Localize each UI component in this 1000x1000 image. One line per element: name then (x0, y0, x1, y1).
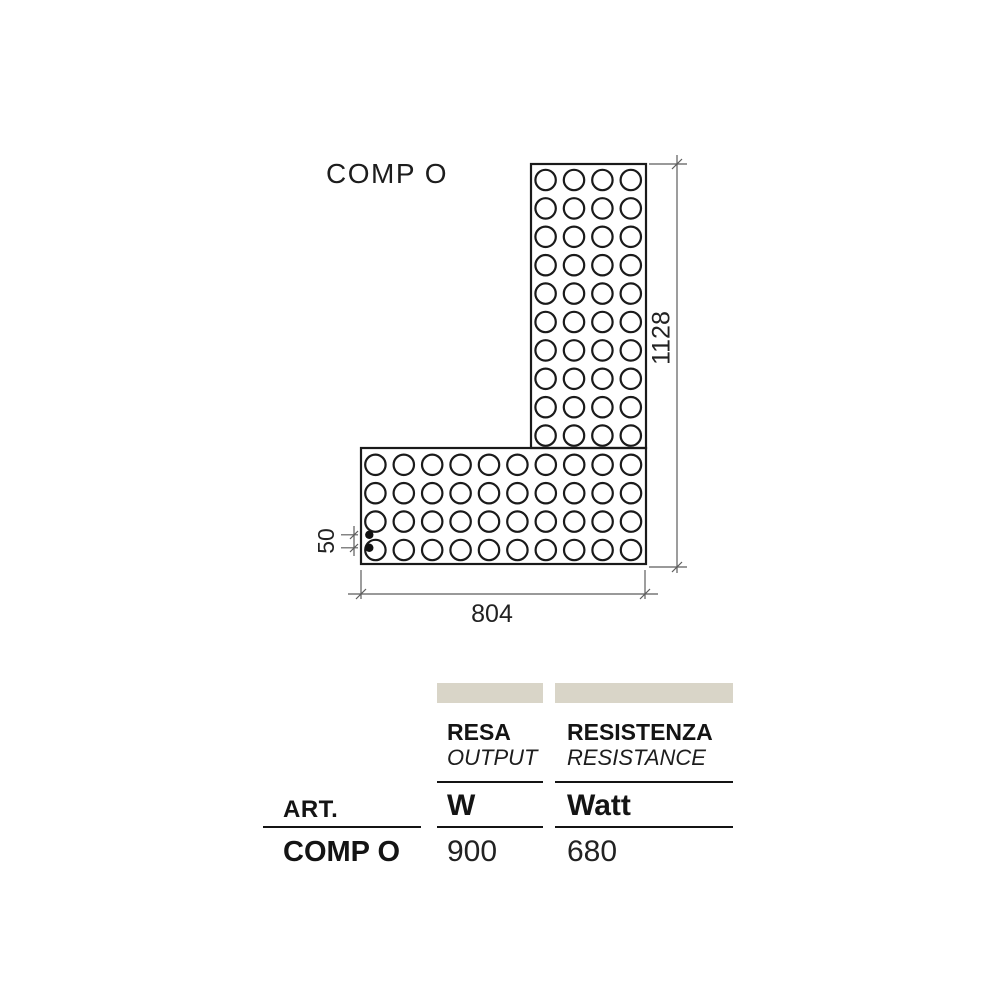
dimension-width (348, 570, 658, 599)
heating-element-circle (564, 340, 584, 360)
heating-element-circle (507, 540, 527, 560)
heating-element-circle (536, 483, 556, 503)
heating-element-circle (621, 511, 641, 531)
dimension-offset-label: 50 (313, 528, 339, 554)
header-bar-resistance (555, 683, 733, 703)
art-header: ART. (283, 798, 338, 822)
heating-element-circle (535, 170, 555, 190)
heating-element-circle (450, 511, 470, 531)
heating-element-circle (564, 369, 584, 389)
heating-element-circle (564, 425, 584, 445)
row-resistance-value: 680 (567, 837, 617, 867)
column-title-output: RESA (447, 721, 511, 744)
heating-element-circle (450, 455, 470, 475)
unit-resistance: Watt (567, 791, 631, 821)
heating-element-circle (394, 540, 414, 560)
heating-element-circle (507, 483, 527, 503)
heating-element-circle (592, 540, 612, 560)
heating-element-circle (564, 483, 584, 503)
column-subtitle-resistance: RESISTANCE (567, 747, 706, 769)
heating-element-circle (535, 425, 555, 445)
heating-element-circle (564, 198, 584, 218)
heating-element-circle (450, 540, 470, 560)
heating-element-circle (479, 540, 499, 560)
dimension-offset (341, 526, 358, 556)
heating-element-circle (422, 540, 442, 560)
heating-element-circle (564, 255, 584, 275)
heating-element-circle (536, 455, 556, 475)
heating-element-circle (564, 283, 584, 303)
heating-element-circle (365, 483, 385, 503)
row-article-name: COMP O (283, 838, 400, 867)
heating-element-circle (535, 283, 555, 303)
diagram-title: COMP O (326, 158, 448, 190)
column-title-resistance: RESISTENZA (567, 721, 713, 744)
heating-element-circle (621, 425, 641, 445)
heating-element-circle (621, 540, 641, 560)
heating-element-circle (592, 425, 612, 445)
table-rule (555, 781, 733, 783)
heating-element-circle (422, 455, 442, 475)
connection-dot (365, 544, 373, 552)
heating-element-circle (621, 198, 641, 218)
heating-element-circle (422, 511, 442, 531)
table-rule (263, 826, 421, 828)
heating-element-circle (564, 170, 584, 190)
heating-element-circle (621, 255, 641, 275)
panel-drawing: 1128 804 50 (0, 0, 1000, 1000)
heating-element-circle (535, 397, 555, 417)
heating-element-circle (592, 283, 612, 303)
heating-element-circle (621, 227, 641, 247)
heating-element-circle (564, 511, 584, 531)
heating-element-circle (535, 312, 555, 332)
heating-element-circle (535, 227, 555, 247)
heating-element-circle (479, 483, 499, 503)
spec-sheet-page: 1128 804 50 COMP O RESA OUTPUT RESISTENZ… (0, 0, 1000, 1000)
heating-element-circle (592, 255, 612, 275)
heating-element-circle (621, 340, 641, 360)
heating-element-circle (450, 483, 470, 503)
heating-element-circle (621, 369, 641, 389)
row-output-value: 900 (447, 837, 497, 867)
heating-element-circle (592, 312, 612, 332)
dimension-height-label: 1128 (648, 311, 676, 365)
dimension-width-label: 804 (471, 600, 513, 628)
heating-element-circle (535, 340, 555, 360)
column-subtitle-output: OUTPUT (447, 747, 537, 769)
heating-element-circle (535, 255, 555, 275)
heating-element-circle (592, 340, 612, 360)
heating-element-circle (592, 198, 612, 218)
heating-element-circle (507, 511, 527, 531)
heating-element-circle (507, 455, 527, 475)
unit-output: W (447, 791, 475, 821)
heating-element-circle (394, 483, 414, 503)
heating-element-circle (621, 397, 641, 417)
heating-element-circle (621, 170, 641, 190)
heating-element-circle (536, 540, 556, 560)
heating-element-circle (479, 511, 499, 531)
heating-element-circle (592, 511, 612, 531)
heating-element-circle (592, 455, 612, 475)
heating-element-circle (621, 283, 641, 303)
heating-element-circle (592, 369, 612, 389)
heating-element-circle (394, 511, 414, 531)
heating-element-circle (564, 455, 584, 475)
heating-element-circle (365, 455, 385, 475)
heating-element-circle (621, 455, 641, 475)
heating-element-circle (365, 511, 385, 531)
heating-element-circle (535, 369, 555, 389)
heating-element-circle (564, 540, 584, 560)
table-rule (437, 781, 543, 783)
heating-element-circle (592, 227, 612, 247)
heating-element-circle (621, 483, 641, 503)
heating-element-circle (621, 312, 641, 332)
heating-element-circle (564, 397, 584, 417)
table-rule (437, 826, 543, 828)
heating-element-circles (365, 170, 641, 560)
heating-element-circle (535, 198, 555, 218)
heating-element-circle (422, 483, 442, 503)
heating-element-circle (592, 397, 612, 417)
table-rule (555, 826, 733, 828)
heating-element-circle (394, 455, 414, 475)
heating-element-circle (564, 227, 584, 247)
heating-element-circle (564, 312, 584, 332)
heating-element-circle (592, 483, 612, 503)
heating-element-circle (479, 455, 499, 475)
heating-element-circle (536, 511, 556, 531)
heating-element-circle (592, 170, 612, 190)
connection-dot (365, 531, 373, 539)
header-bar-output (437, 683, 543, 703)
